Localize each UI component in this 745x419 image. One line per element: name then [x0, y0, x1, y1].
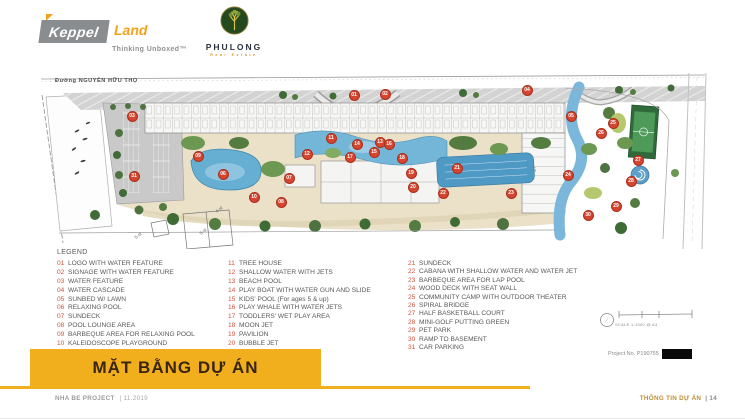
legend-item: 28MINI-GOLF PUTTING GREEN [408, 319, 623, 327]
footer-section: THÔNG TIN DỰ ÁN| 14 [640, 395, 717, 402]
footer-section-name: THÔNG TIN DỰ ÁN [640, 395, 702, 402]
phulong-subtitle: Real Estate [203, 53, 265, 57]
redacted-box [662, 349, 692, 359]
plan-marker-18: 18 [397, 153, 408, 164]
plan-marker-08: 08 [276, 197, 287, 208]
legend-item: 22CABANA WITH SHALLOW WATER AND WATER JE… [408, 268, 623, 276]
legend-item: 13BEACH POOL [228, 278, 408, 287]
plan-marker-05: 05 [566, 111, 577, 122]
plan-marker-12: 12 [302, 149, 313, 160]
legend-item: 19PAVILION [228, 331, 408, 340]
legend-item: 17TODDLERS' WET PLAY AREA [228, 313, 408, 322]
legend-item: 31CAR PARKING [408, 344, 623, 352]
plan-marker-07: 07 [284, 173, 295, 184]
plan-marker-17: 17 [345, 152, 356, 163]
site-plan: T5 [33, 73, 711, 249]
plan-marker-04: 04 [522, 85, 533, 96]
plan-marker-20: 20 [408, 182, 419, 193]
phulong-logo: PHULONG Real Estate [203, 6, 265, 57]
legend-item: 26SPIRAL BRIDGE [408, 302, 623, 310]
keppel-land-text: Land [114, 22, 147, 38]
plan-marker-10: 10 [249, 192, 260, 203]
legend-item: 23BARBEQUE AREA FOR LAP POOL [408, 277, 623, 285]
legend-item: 08POOL LOUNGE AREA [57, 322, 227, 331]
plan-marker-29: 29 [611, 201, 622, 212]
footer-project: NHA BE PROJECT| 11.2019 [55, 395, 148, 402]
legend-item: 12SHALLOW WATER WITH JETS [228, 269, 408, 278]
future-block-label: 5-st [199, 227, 209, 236]
legend-item: 27HALF BASKETBALL COURT [408, 310, 623, 318]
plan-marker-09: 09 [193, 151, 204, 162]
plan-marker-03: 03 [127, 111, 138, 122]
legend-item: 14PLAY BOAT WITH WATER GUN AND SLIDE [228, 287, 408, 296]
plan-marker-26: 26 [596, 128, 607, 139]
plan-marker-19: 19 [406, 168, 417, 179]
plan-marker-28: 28 [626, 176, 637, 187]
slide: Keppel Land Thinking Unboxed™ PHULONG Re… [0, 0, 745, 419]
legend-item: 09BARBEQUE AREA FOR RELAXING POOL [57, 331, 227, 340]
legend-title: LEGEND [57, 249, 88, 256]
plan-marker-14: 14 [352, 139, 363, 150]
plan-marker-15: 15 [369, 147, 380, 158]
legend-column-3: 21SUNDECK22CABANA WITH SHALLOW WATER AND… [408, 260, 623, 352]
plan-marker-16: 16 [384, 139, 395, 150]
legend-item: 02SIGNAGE WITH WATER FEATURE [57, 269, 227, 278]
legend-item: 21SUNDECK [408, 260, 623, 268]
plan-marker-27: 27 [633, 155, 644, 166]
legend-item: 10KALEIDOSCOPE PLAYGROUND [57, 340, 227, 349]
footer-project-name: NHA BE PROJECT [55, 395, 115, 402]
gold-divider [0, 386, 530, 389]
phulong-name: PHULONG [203, 42, 265, 52]
plan-marker-01: 01 [349, 90, 360, 101]
legend-item: 15KIDS' POOL (For ages 5 & up) [228, 296, 408, 305]
plan-marker-23: 23 [506, 188, 517, 199]
legend-item: 01LOGO WITH WATER FEATURE [57, 260, 227, 269]
legend-item: 03WATER FEATURE [57, 278, 227, 287]
future-block-label: 5-st [134, 231, 144, 240]
legend-item: 30RAMP TO BASEMENT [408, 336, 623, 344]
plan-marker-24: 24 [563, 170, 574, 181]
keppel-tagline: Thinking Unboxed™ [112, 46, 187, 53]
legend-item: 05SUNBED W/ LAWN [57, 296, 227, 305]
legend-item: 18MOON JET [228, 322, 408, 331]
legend-item: 24WOOD DECK WITH SEAT WALL [408, 285, 623, 293]
legend-item: 25COMMUNITY CAMP WITH OUTDOOR THEATER [408, 294, 623, 302]
plan-marker-11: 11 [326, 133, 337, 144]
legend-item: 29PET PARK [408, 327, 623, 335]
phulong-tree-icon [220, 6, 249, 35]
legend-item: 16PLAY WHALE WITH WATER JETS [228, 304, 408, 313]
footer-page-number: | 14 [705, 395, 717, 402]
legend-item: 06RELAXING POOL [57, 304, 227, 313]
legend-item: 07SUNDECK [57, 313, 227, 322]
keppel-logo-box: Keppel [38, 20, 109, 43]
plan-marker-06: 06 [218, 169, 229, 180]
plan-marker-30: 30 [583, 210, 594, 221]
plan-marker-21: 21 [452, 163, 463, 174]
legend-column-2: 11TREE HOUSE12SHALLOW WATER WITH JETS13B… [228, 260, 408, 349]
plan-marker-02: 02 [380, 89, 391, 100]
plan-marker-22: 22 [438, 188, 449, 199]
slide-title: MẶT BẰNG DỰ ÁN [93, 358, 259, 378]
legend-item: 20BUBBLE JET [228, 340, 408, 349]
legend-item: 11TREE HOUSE [228, 260, 408, 269]
keppel-logo-text: Keppel [48, 24, 100, 40]
legend-item: 04WATER CASCADE [57, 287, 227, 296]
footer-date: | 11.2019 [120, 395, 148, 402]
site-plan-drawing: T5 [33, 73, 711, 249]
plan-marker-31: 31 [129, 171, 140, 182]
legend-column-1: 01LOGO WITH WATER FEATURE02SIGNAGE WITH … [57, 260, 227, 349]
slide-title-bar: MẶT BẰNG DỰ ÁN [30, 349, 321, 386]
plan-marker-25: 25 [608, 118, 619, 129]
street-label: Đường NGUYỄN HỮU THỌ [55, 78, 138, 84]
